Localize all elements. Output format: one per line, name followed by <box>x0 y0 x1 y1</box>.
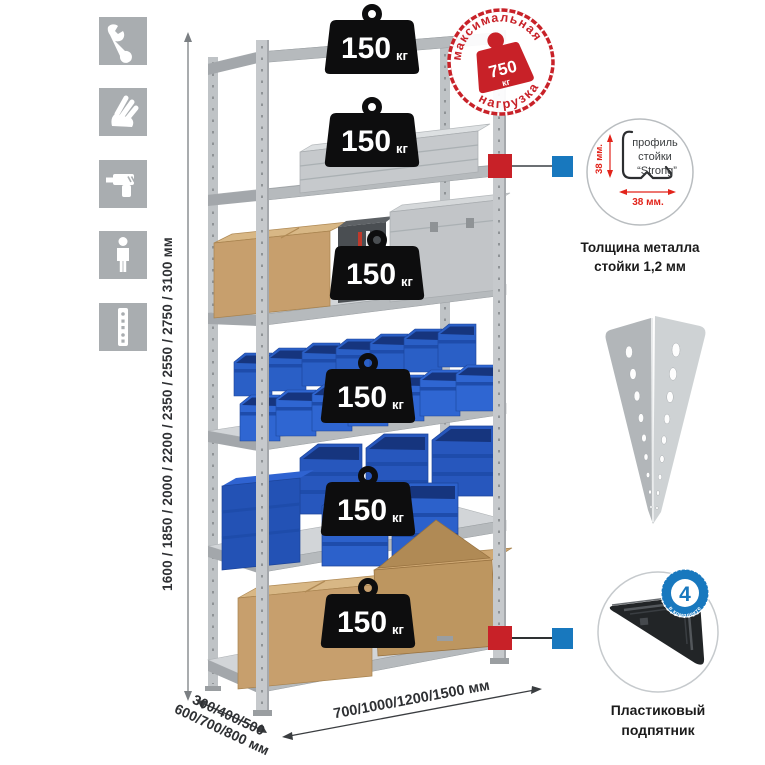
red-marker <box>488 154 512 178</box>
profile-dim-horizontal: 38 мм. <box>632 197 664 208</box>
weight-value: 150 <box>341 125 391 158</box>
foot-caption-line-2: подпятник <box>578 720 738 740</box>
profile-caption-line-1: Толщина металла <box>560 238 720 257</box>
weight-unit: кг <box>392 397 405 412</box>
weight-value: 150 <box>337 606 387 639</box>
rack-foot <box>205 686 221 691</box>
max-load-stamp: 750 кг максимальная нагрузка <box>438 0 564 125</box>
person-icon <box>99 231 147 279</box>
weight-badge: 150 кг <box>325 100 419 167</box>
profile-dim-vertical: 38 мм. <box>594 144 605 174</box>
drill-icon <box>99 160 147 208</box>
profile-label-1: профиль <box>632 137 678 149</box>
profile-caption-line-2: стойки 1,2 мм <box>560 257 720 276</box>
gloves-icon <box>99 88 147 136</box>
profile-label-2: стойки <box>638 151 672 163</box>
weight-unit: кг <box>396 48 409 63</box>
weight-value: 150 <box>337 494 387 527</box>
weight-value: 150 <box>346 258 396 291</box>
weight-unit: кг <box>401 274 414 289</box>
blue-marker <box>552 628 573 649</box>
blue-marker <box>552 156 573 177</box>
rack-foot <box>437 636 453 641</box>
connector-profile-callout <box>488 154 573 178</box>
weight-value: 150 <box>341 32 391 65</box>
weight-unit: кг <box>392 622 405 637</box>
foot-caption-line-1: Пластиковый <box>578 700 738 720</box>
profile-label-3: “Strong” <box>637 165 677 177</box>
wrench-icon <box>99 17 147 65</box>
post-profile-detail: 38 мм. 38 мм. профиль стойки “Strong” <box>587 119 693 225</box>
product-infographic: 38 мм. 38 мм. профиль стойки “Strong” <box>0 0 765 765</box>
badge-value: 4 <box>679 583 691 606</box>
corner-post-image <box>606 316 706 524</box>
weight-unit: кг <box>396 141 409 156</box>
connector-foot-callout <box>488 626 573 650</box>
weight-value: 150 <box>337 381 387 414</box>
cardboard-box-small <box>214 222 348 318</box>
upright-profile-icon <box>99 303 147 351</box>
red-marker <box>488 626 512 650</box>
weight-badge: 150 кг <box>325 7 419 74</box>
foot-caption: Пластиковый подпятник <box>578 700 738 740</box>
rack-foot <box>490 658 509 664</box>
profile-caption: Толщина металла стойки 1,2 мм <box>560 238 720 276</box>
height-dimensions-label: 1600 / 1850 / 2000 / 2200 / 2350 / 2550 … <box>160 174 178 654</box>
dimension-line-height <box>184 32 192 701</box>
rack-foot <box>253 710 272 716</box>
weight-unit: кг <box>392 510 405 525</box>
